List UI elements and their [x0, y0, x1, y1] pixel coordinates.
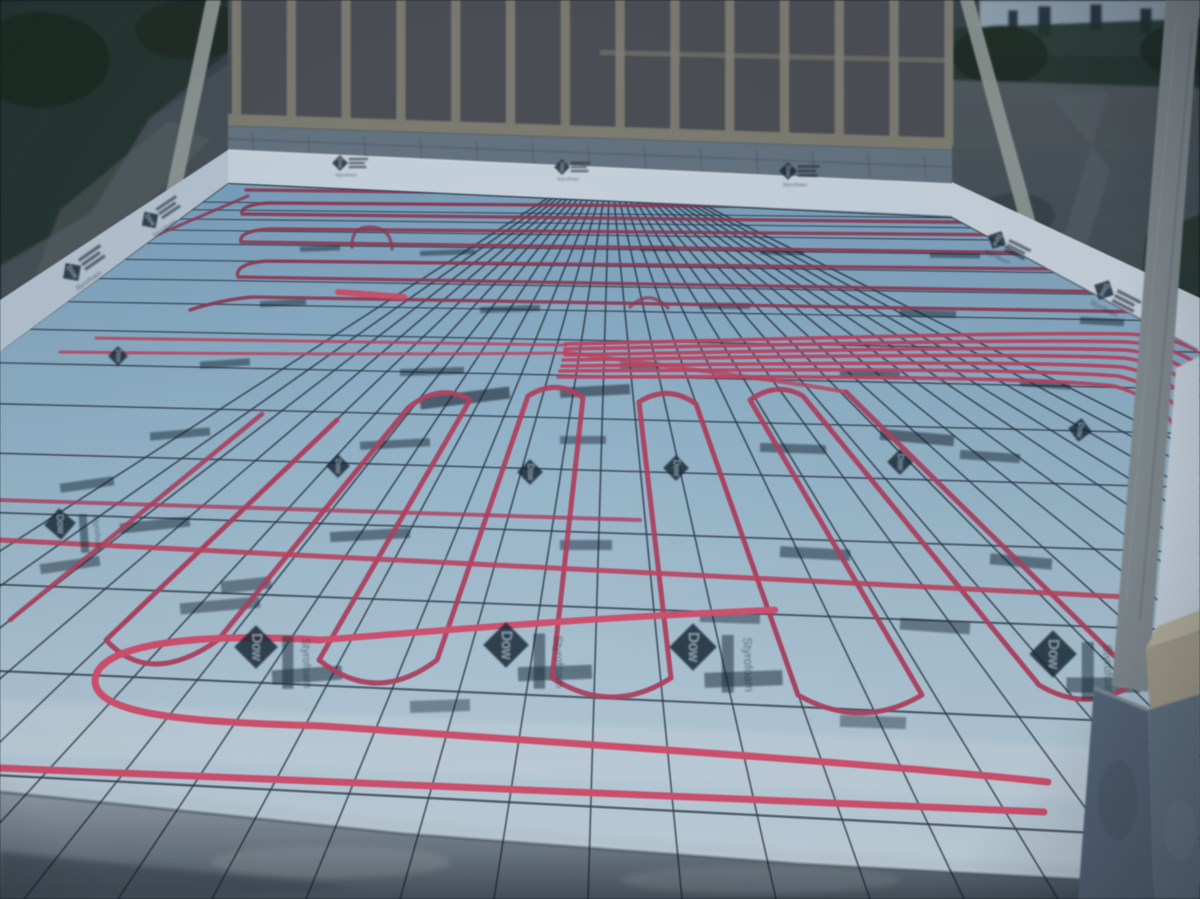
- vignette: [0, 0, 1200, 899]
- construction-photo: DowStyrofoamDowStyrofoamDowStyrofoamDowS…: [0, 0, 1200, 899]
- photo-stage: DowStyrofoamDowStyrofoamDowStyrofoamDowS…: [0, 0, 1200, 899]
